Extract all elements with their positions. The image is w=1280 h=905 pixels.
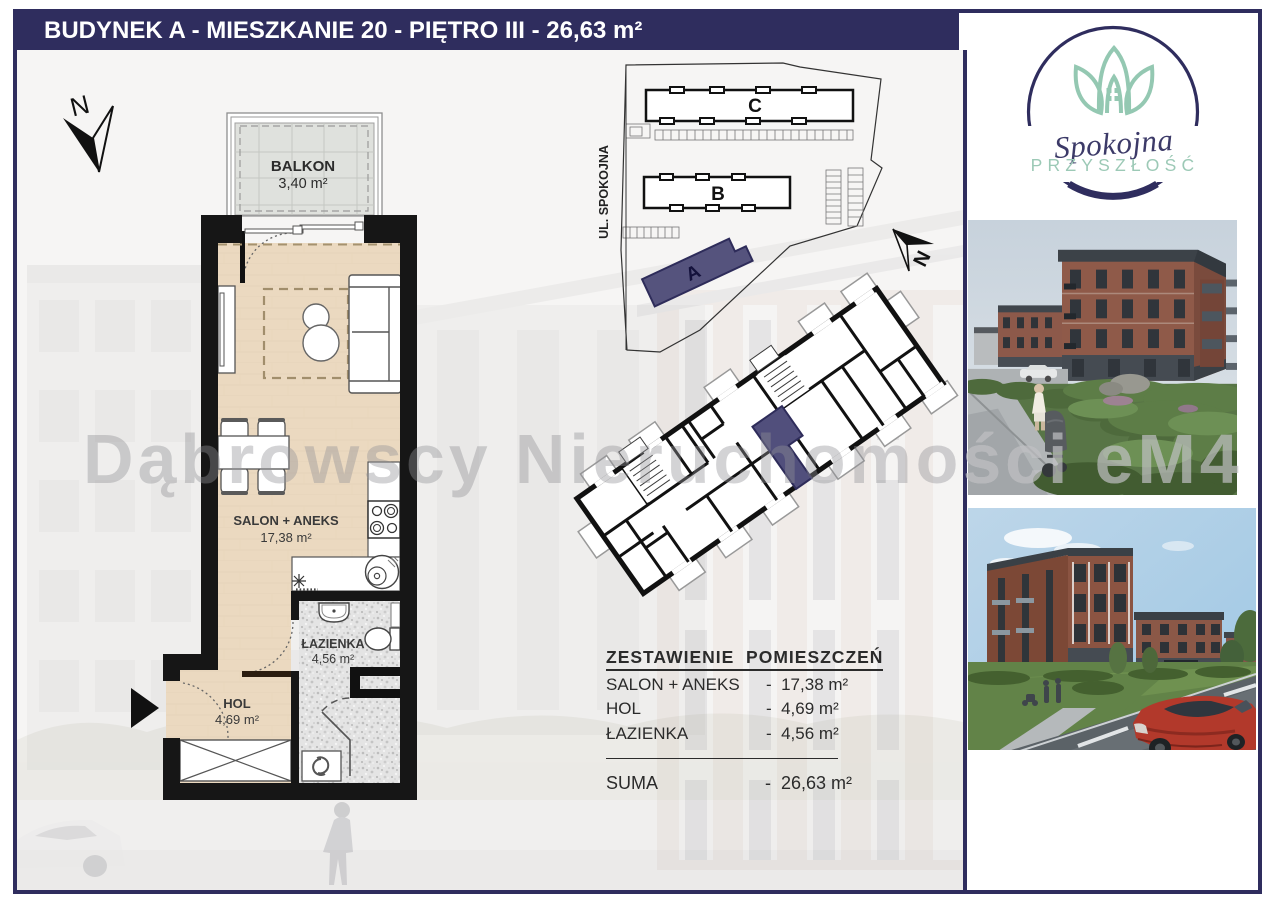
svg-text:B: B xyxy=(711,184,725,205)
svg-text:UL. SPOKOJNA: UL. SPOKOJNA xyxy=(597,145,611,239)
svg-text:4,69 m²: 4,69 m² xyxy=(215,712,260,727)
svg-text:HOL: HOL xyxy=(223,696,251,711)
svg-text:C: C xyxy=(748,96,762,117)
svg-text:PRZYSZŁOŚĆ: PRZYSZŁOŚĆ xyxy=(1031,154,1200,175)
svg-text:BALKON: BALKON xyxy=(271,158,335,175)
svg-text:3,40 m²: 3,40 m² xyxy=(278,176,327,192)
svg-text:N: N xyxy=(67,89,92,123)
svg-text:4,56 m²: 4,56 m² xyxy=(312,652,354,666)
svg-text:ŁAZIENKA: ŁAZIENKA xyxy=(301,637,364,651)
svg-text:SALON + ANEKS: SALON + ANEKS xyxy=(233,513,339,528)
svg-text:17,38 m²: 17,38 m² xyxy=(260,530,312,545)
